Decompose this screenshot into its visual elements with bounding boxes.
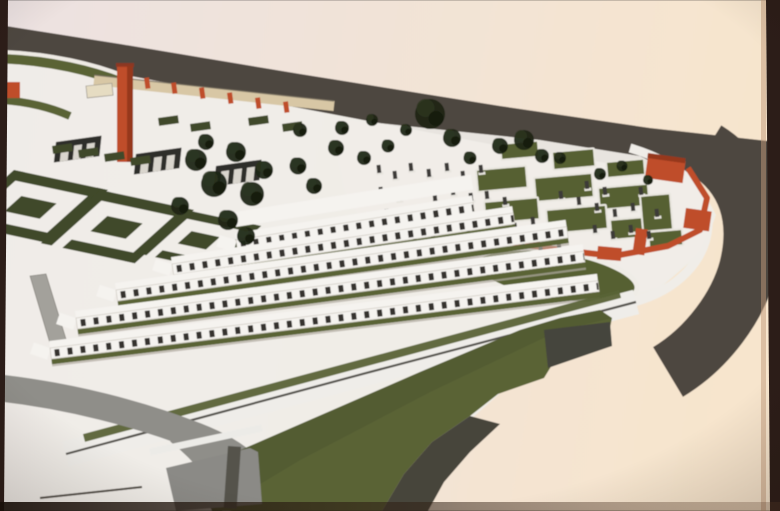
photo-of-site-rendering (0, 0, 780, 511)
rendering-canvas (0, 0, 780, 511)
vignette (0, 0, 780, 511)
